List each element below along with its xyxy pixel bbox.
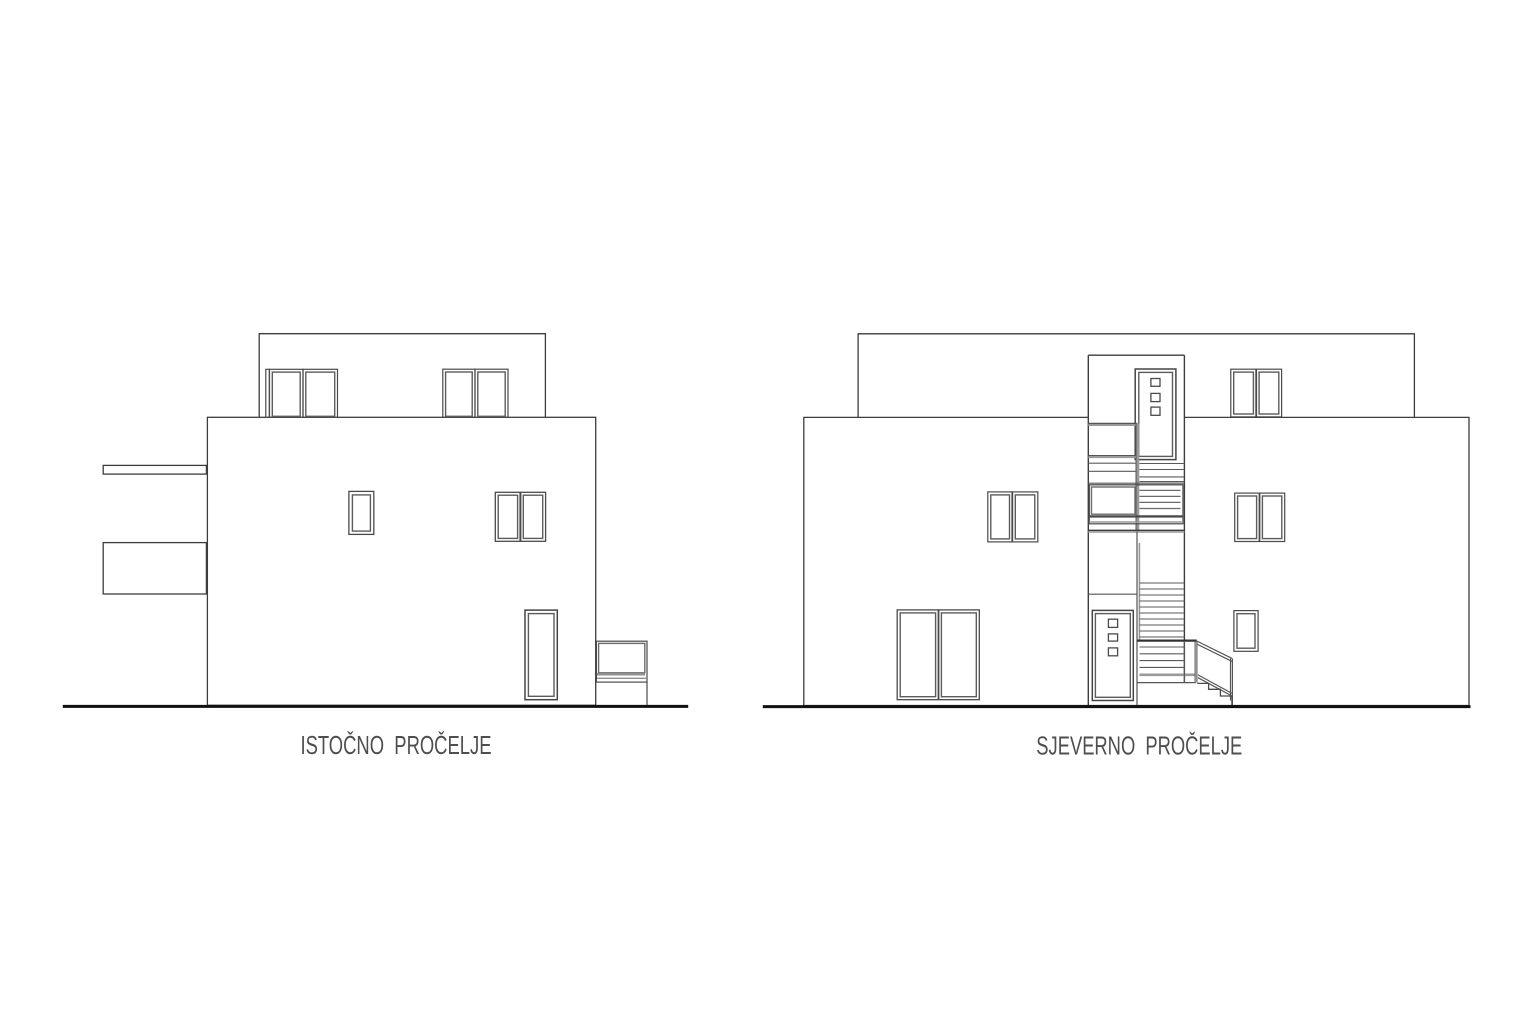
svg-text:ISTOČNO PROČELJE: ISTOČNO PROČELJE bbox=[301, 731, 492, 760]
svg-text:SJEVERNO PROČELJE: SJEVERNO PROČELJE bbox=[1036, 732, 1242, 761]
